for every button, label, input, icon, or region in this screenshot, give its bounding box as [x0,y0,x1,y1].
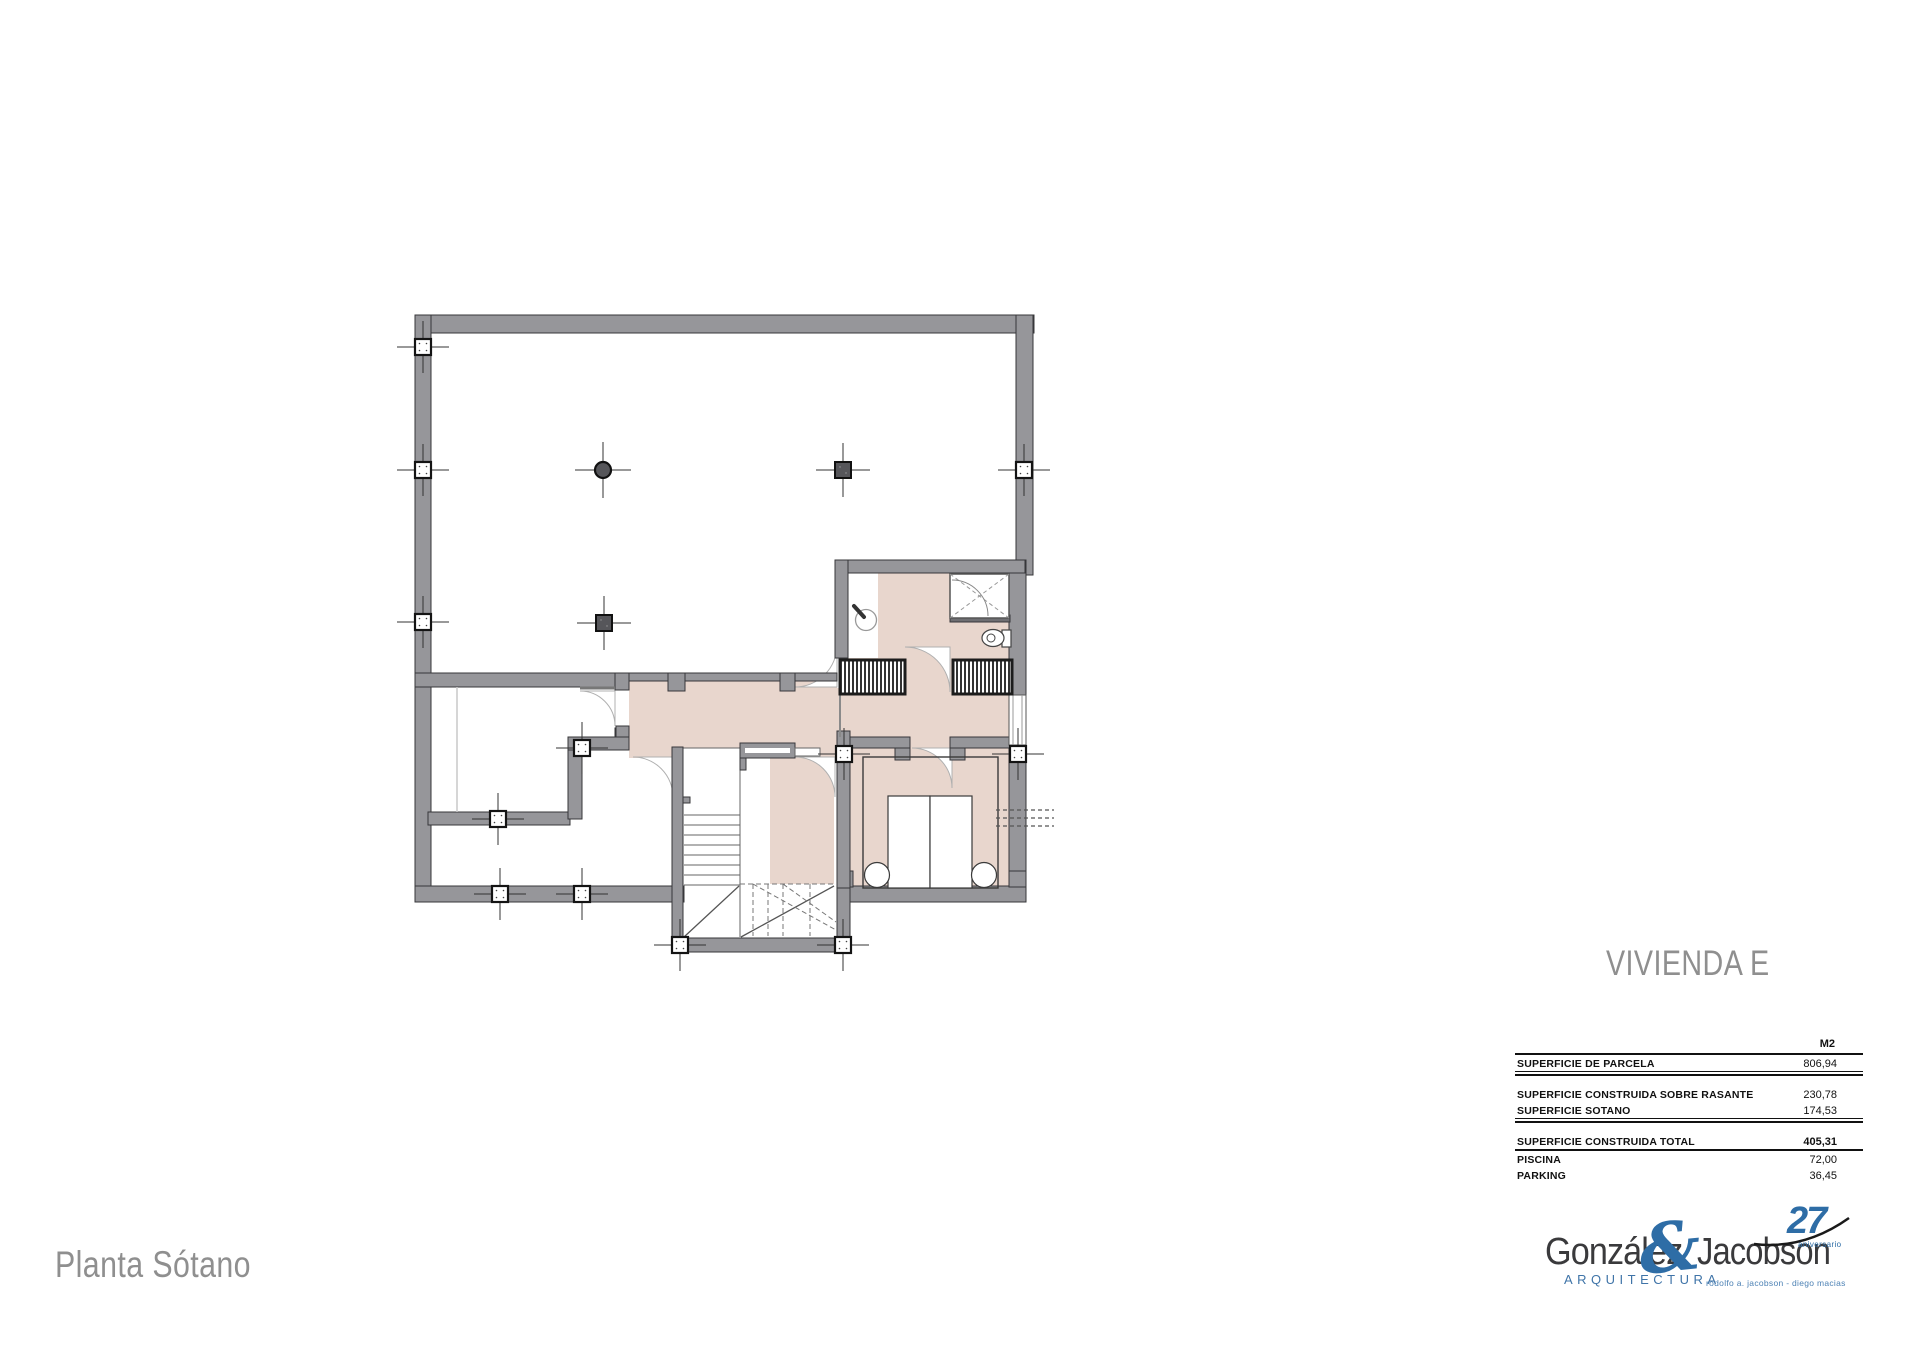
bedside-table-right [972,863,997,888]
toilet [982,630,1011,648]
company-logo: González & Jacobson 27 aniversario ARQUI… [1540,1198,1900,1313]
floor-label: Planta Sótano [55,1244,251,1286]
table-row: SUPERFICIE DE PARCELA 806,94 [1515,1055,1863,1071]
areas-table: M2 SUPERFICIE DE PARCELA 806,94 SUPERFIC… [1515,1038,1863,1183]
beam-over-opening [629,673,837,681]
door-swing-utility [633,757,673,797]
slit [745,748,790,753]
table-row: PISCINA 72,00 [1515,1151,1863,1167]
anniversary-word: aniversario [1798,1240,1842,1249]
wall-garage-separation [415,673,615,687]
shower [950,574,1009,618]
wall-top [415,315,1034,333]
wall-bedroom-top-1 [850,737,910,748]
wall-bath-left [835,560,848,658]
bedside-table-left [865,863,890,888]
logo-discipline: ARQUITECTURA [1564,1272,1721,1287]
table-row: SUPERFICIE CONSTRUIDA SOBRE RASANTE 230,… [1515,1086,1863,1102]
unit-header: M2 [1515,1038,1863,1053]
wall-bedroom-top-2 [950,737,1010,748]
wall-storage-right [568,750,582,819]
closet-left [840,660,905,694]
door-swing-storage [580,691,615,726]
railing [795,748,820,756]
drawing-sheet: VIVIENDA E Planta Sótano M2 SUPERFICIE D… [0,0,1920,1357]
wall-bottom-left [415,886,684,902]
project-title: VIVIENDA E [1606,944,1770,984]
wall-stair-left [672,747,683,952]
table-row: PARKING 36,45 [1515,1167,1863,1183]
logo-partners: rodolfo a. jacobson - diego macias [1706,1278,1846,1288]
round-column [575,442,631,498]
closet-right [953,660,1012,694]
wall-bath-top [835,560,1025,573]
table-row: SUPERFICIE CONSTRUIDA TOTAL 405,31 [1515,1133,1863,1149]
table-row: SUPERFICIE SOTANO 174,53 [1515,1102,1863,1118]
square-column [816,443,870,497]
